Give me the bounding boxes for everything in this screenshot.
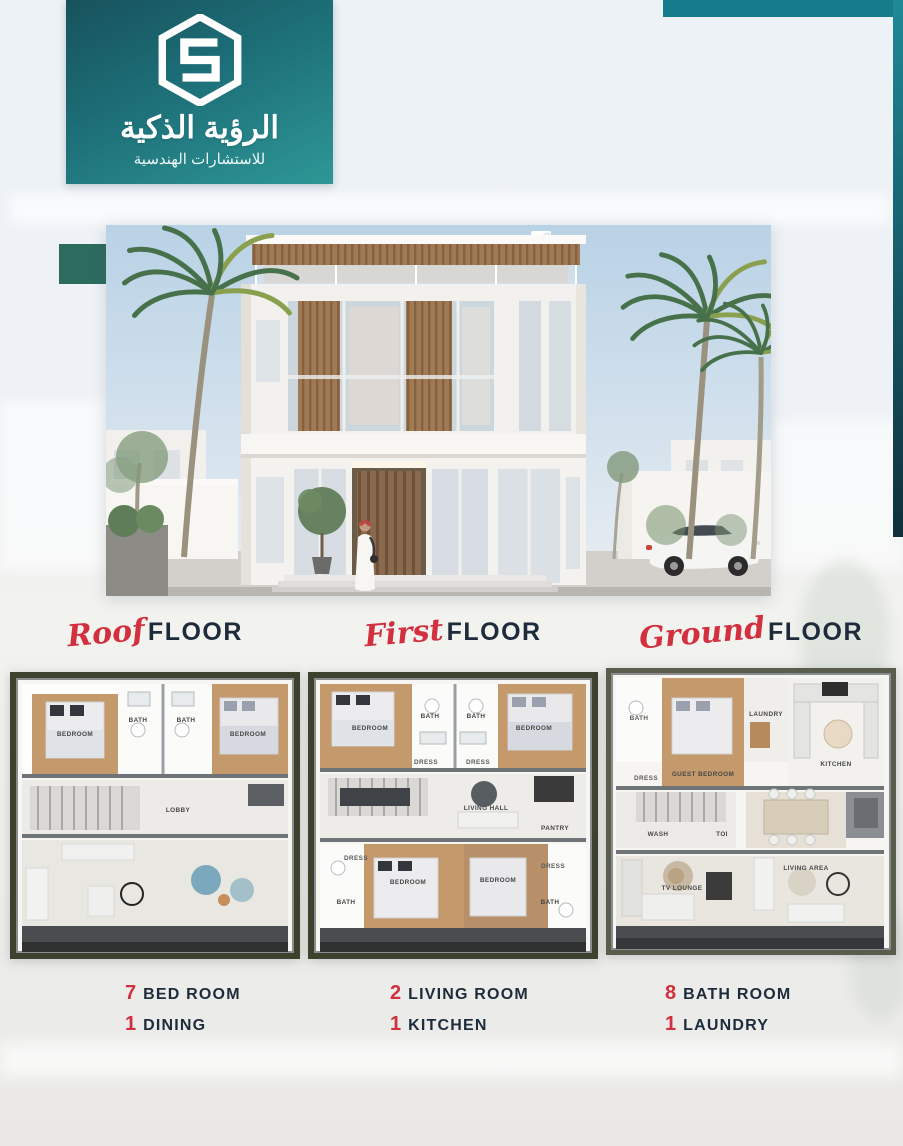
svg-text:BATH: BATH	[421, 713, 440, 720]
floor-word: FLOOR	[148, 618, 243, 647]
stat-count: 2	[390, 982, 401, 1005]
company-name-arabic: الرؤية الذكية	[120, 112, 279, 143]
stat-count: 1	[125, 1013, 136, 1036]
floor-plan-roof: BEDROOM BATH BATH BEDROOM LOBBY	[10, 672, 300, 959]
stat-count: 1	[390, 1013, 401, 1036]
svg-text:DRESS: DRESS	[634, 775, 658, 782]
svg-text:DRESS: DRESS	[541, 863, 565, 870]
svg-text:TOI: TOI	[716, 831, 728, 838]
villa-render-photo	[106, 225, 771, 596]
floor-label-first: First FLOOR	[308, 606, 598, 658]
svg-text:DRESS: DRESS	[414, 759, 438, 766]
svg-text:BEDROOM: BEDROOM	[516, 725, 552, 732]
stat-bedrooms: 7 BED ROOM	[125, 982, 241, 1006]
svg-text:BATH: BATH	[177, 717, 196, 724]
svg-text:KITCHEN: KITCHEN	[820, 761, 851, 768]
floor-plan-ground: BATH GUEST BEDROOM LAUNDRY KITCHEN DRESS…	[606, 668, 896, 955]
floor-script-word: Roof	[66, 612, 147, 654]
svg-text:TV LOUNGE: TV LOUNGE	[662, 885, 703, 892]
floor-script-word: Ground	[638, 610, 767, 656]
accent-square	[59, 244, 106, 284]
stat-label: BED ROOM	[143, 986, 241, 1004]
svg-text:LIVING AREA: LIVING AREA	[783, 865, 828, 872]
svg-text:BEDROOM: BEDROOM	[57, 731, 93, 738]
svg-text:BATH: BATH	[630, 715, 649, 722]
stat-count: 1	[665, 1013, 676, 1036]
stat-living-rooms: 2 LIVING ROOM	[390, 982, 529, 1006]
stat-label: KITCHEN	[408, 1017, 488, 1035]
svg-text:BEDROOM: BEDROOM	[230, 731, 266, 738]
svg-text:BEDROOM: BEDROOM	[352, 725, 388, 732]
real-estate-poster: الرؤية الذكية للاستشارات الهندسية	[0, 0, 903, 1146]
stat-dining: 1 DINING	[125, 1013, 241, 1037]
svg-text:BATH: BATH	[467, 713, 486, 720]
floor-label-ground: Ground FLOOR	[606, 606, 896, 658]
floor-plan-first: BEDROOM BATH BATH BEDROOM DRESS DRESS LI…	[308, 672, 598, 959]
stat-label: LIVING ROOM	[408, 986, 529, 1004]
stat-label: BATH ROOM	[683, 986, 791, 1004]
top-teal-bar	[663, 0, 903, 17]
stat-label: LAUNDRY	[683, 1017, 769, 1035]
svg-text:LAUNDRY: LAUNDRY	[749, 711, 783, 718]
svg-text:BATH: BATH	[541, 899, 560, 906]
stat-label: DINING	[143, 1017, 206, 1035]
svg-text:DRESS: DRESS	[466, 759, 490, 766]
svg-text:PANTRY: PANTRY	[541, 825, 569, 832]
svg-text:WASH: WASH	[648, 831, 669, 838]
watermark-building-left	[0, 400, 110, 570]
hexagon-s-logo-icon	[154, 14, 246, 106]
watermark-band	[10, 194, 890, 224]
stats-column-2: 2 LIVING ROOM 1 KITCHEN	[390, 982, 529, 1044]
stats-column-1: 7 BED ROOM 1 DINING	[125, 982, 241, 1044]
floor-label-roof: Roof FLOOR	[10, 606, 300, 658]
svg-text:BATH: BATH	[129, 717, 148, 724]
watermark-building-right	[770, 420, 903, 570]
floor-word: FLOOR	[768, 618, 863, 647]
svg-text:LOBBY: LOBBY	[166, 807, 191, 814]
svg-text:DRESS: DRESS	[344, 855, 368, 862]
stat-laundry: 1 LAUNDRY	[665, 1013, 791, 1037]
floor-word: FLOOR	[447, 618, 542, 647]
stat-count: 7	[125, 982, 136, 1005]
right-teal-strip	[893, 0, 903, 537]
svg-text:LIVING HALL: LIVING HALL	[464, 805, 509, 812]
company-logo-block: الرؤية الذكية للاستشارات الهندسية	[66, 0, 333, 184]
svg-text:BEDROOM: BEDROOM	[390, 879, 426, 886]
stat-count: 8	[665, 982, 676, 1005]
company-tagline-arabic: للاستشارات الهندسية	[134, 150, 265, 168]
svg-text:BATH: BATH	[337, 899, 356, 906]
svg-text:BEDROOM: BEDROOM	[480, 877, 516, 884]
stat-kitchen: 1 KITCHEN	[390, 1013, 529, 1037]
stats-column-3: 8 BATH ROOM 1 LAUNDRY	[665, 982, 791, 1044]
floor-script-word: First	[363, 612, 445, 654]
stat-bathrooms: 8 BATH ROOM	[665, 982, 791, 1006]
watermark-street	[0, 1042, 903, 1078]
svg-text:GUEST BEDROOM: GUEST BEDROOM	[672, 771, 734, 778]
